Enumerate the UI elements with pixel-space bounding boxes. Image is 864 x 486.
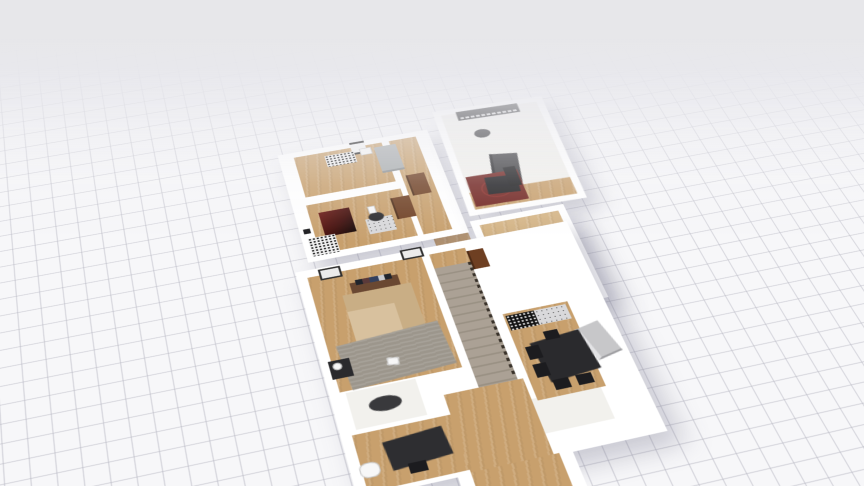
ground-grid-plane — [0, 0, 864, 486]
house-model — [287, 105, 811, 486]
speckled-rug[interactable] — [308, 234, 341, 257]
floorplan-3d-viewport — [0, 0, 864, 486]
lower-block — [295, 221, 667, 486]
paper-sheet[interactable] — [387, 357, 400, 365]
wall-tag — [303, 228, 311, 234]
